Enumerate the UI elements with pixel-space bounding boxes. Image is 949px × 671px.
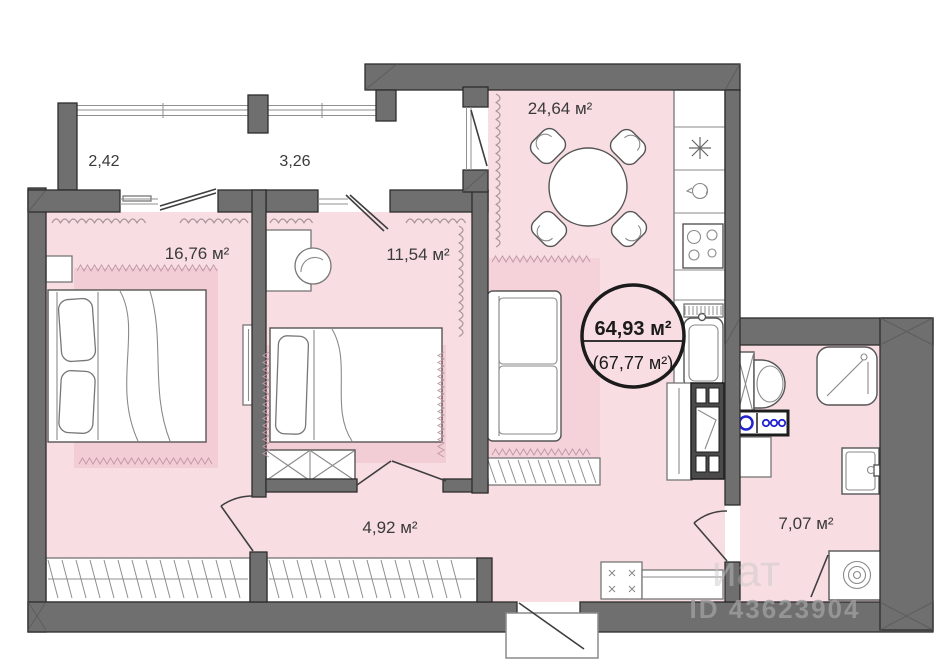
badge-total-area: (67,77 м²) — [593, 353, 673, 373]
bedroom-1-area-label: 16,76 м² — [165, 244, 230, 263]
kitchen-balcony-door — [467, 107, 488, 170]
pillow — [58, 370, 95, 434]
double-bed — [48, 290, 206, 442]
desk-chair — [295, 248, 331, 284]
bathroom-area-label: 7,07 м² — [778, 514, 833, 533]
kitchen-area-label: 24,64 м² — [528, 99, 593, 118]
bedroom-1-window-door — [120, 189, 216, 210]
shower-tray — [817, 347, 877, 405]
balcony-glazing — [77, 103, 377, 118]
nightstand — [46, 256, 72, 282]
kitchen-sink-icon — [684, 304, 723, 388]
bedroom2-kitchen-wall — [472, 190, 488, 493]
closet-pier — [477, 558, 492, 602]
water-unit — [734, 411, 788, 435]
single-bed — [270, 328, 442, 442]
inter-bedroom-wall — [252, 190, 266, 497]
wall-right — [880, 318, 933, 630]
shoe-bench — [601, 562, 642, 599]
watermark-word: иат — [712, 547, 780, 596]
pillow — [58, 298, 96, 362]
bedroom-2-top-wall — [266, 190, 318, 212]
closet-band — [46, 558, 250, 602]
dark-wardrobe — [691, 383, 724, 479]
dining-table — [549, 148, 627, 226]
kitchen-left-stub-top — [463, 87, 488, 107]
balcony-pier — [248, 95, 268, 133]
wardrobe-crossed — [266, 450, 355, 481]
wall-tab — [376, 90, 396, 121]
sofa — [487, 291, 561, 441]
wall-top — [365, 64, 740, 90]
total-area-badge: 64,93 м² (67,77 м²) — [582, 285, 684, 387]
balcony-right-label: 3,26 — [279, 153, 310, 170]
bedroom-2-bottom-wall — [266, 479, 357, 492]
inter-bedroom-pier — [250, 552, 267, 602]
wall-left — [28, 188, 46, 632]
balcony-left-label: 2,42 — [88, 153, 119, 170]
pillow — [275, 336, 308, 435]
bath-shelf — [737, 437, 771, 477]
watermark-id: ID 43623904 — [690, 594, 861, 624]
kitchen-counter — [667, 90, 725, 480]
floor-plan-page: 64,93 м² (67,77 м²) 2,42 3,26 16,76 м² 1… — [0, 0, 949, 671]
bedroom-1-top-wall — [28, 190, 120, 212]
bath-sink — [842, 448, 880, 494]
floor-plan-svg: 64,93 м² (67,77 м²) 2,42 3,26 16,76 м² 1… — [0, 0, 949, 671]
hallway-area-label: 4,92 м² — [362, 518, 417, 537]
entrance-porch — [506, 613, 598, 658]
bedroom-2-area-label: 11,54 м² — [386, 245, 450, 264]
fridge-icon — [689, 137, 711, 159]
wall-bottom-left — [28, 602, 517, 632]
kitchen-bath-partition — [725, 90, 740, 505]
tv-bench — [486, 458, 600, 485]
stove-icon — [683, 224, 723, 268]
badge-living-area: 64,93 м² — [594, 318, 671, 340]
balcony-left-wall — [58, 103, 77, 190]
